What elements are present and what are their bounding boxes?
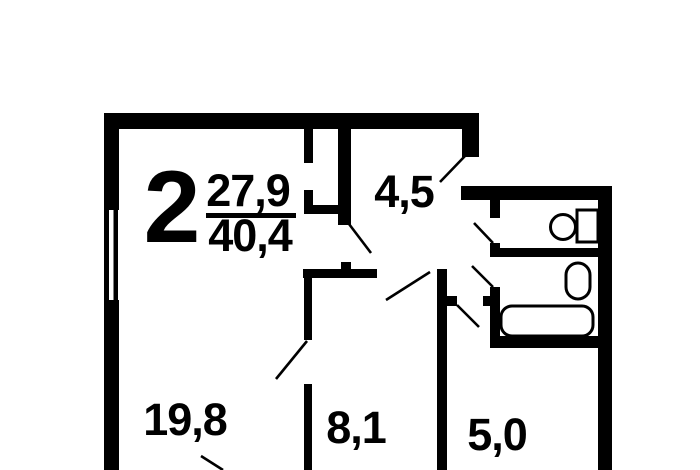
living-area-label: 27,9 <box>206 168 290 213</box>
kitchen-right-wall-stub <box>447 296 457 306</box>
wall-left-lower <box>104 300 119 470</box>
closet-left-wall-upper <box>304 129 313 163</box>
kitchen-right-wall <box>437 269 447 470</box>
wc-left-wall-stub <box>490 200 500 218</box>
window-outer-line <box>104 210 109 300</box>
corridor-door-swing <box>457 305 479 327</box>
living-door-jamb <box>341 262 351 270</box>
floor-plan-drawing <box>0 0 700 470</box>
bathroom-door-swing <box>472 266 493 287</box>
living-room-door-swing <box>349 224 371 253</box>
hallway-area-label: 4,5 <box>374 169 434 214</box>
window-inner-line <box>114 210 119 300</box>
bathtub-icon <box>501 306 593 336</box>
wall-top <box>104 113 479 129</box>
closet-right-wall <box>338 129 351 225</box>
wall-entrance-pier <box>462 113 479 157</box>
toilet-icon <box>551 210 599 242</box>
wc-door-swing <box>474 223 493 243</box>
kitchen-area-label: 8,1 <box>326 405 386 450</box>
kitchen-top-wall <box>303 269 377 278</box>
living-room-area-label: 19,8 <box>143 397 227 442</box>
bath-bottom-wall <box>490 336 612 348</box>
wall-left-upper <box>104 113 119 210</box>
total-area-label: 40,4 <box>208 213 292 258</box>
entrance-door-swing <box>440 156 465 182</box>
corridor-area-label: 5,0 <box>467 412 527 457</box>
wall-sanitary-top <box>461 186 612 200</box>
toilet-bowl <box>551 215 576 240</box>
washbasin-shape <box>566 263 590 299</box>
window-icon <box>104 210 118 300</box>
kitchen-left-wall-upper <box>304 278 312 340</box>
washbasin-icon <box>566 263 590 299</box>
bathtub-shape <box>501 306 593 336</box>
kitchen-left-wall-lower <box>304 384 312 470</box>
toilet-tank <box>577 210 598 242</box>
rooms-count-label: 2 <box>144 156 201 258</box>
kitchen-door-swing <box>386 272 430 300</box>
balcony-door-swing <box>201 456 223 470</box>
wc-bath-divider-wall <box>490 248 598 257</box>
kitchen-living-door-swing <box>276 341 307 379</box>
wall-right <box>598 186 612 470</box>
floor-plan: 2 27,9 40,4 4,5 19,8 8,1 5,0 <box>0 0 700 470</box>
bath-left-wall-stub <box>483 296 490 306</box>
